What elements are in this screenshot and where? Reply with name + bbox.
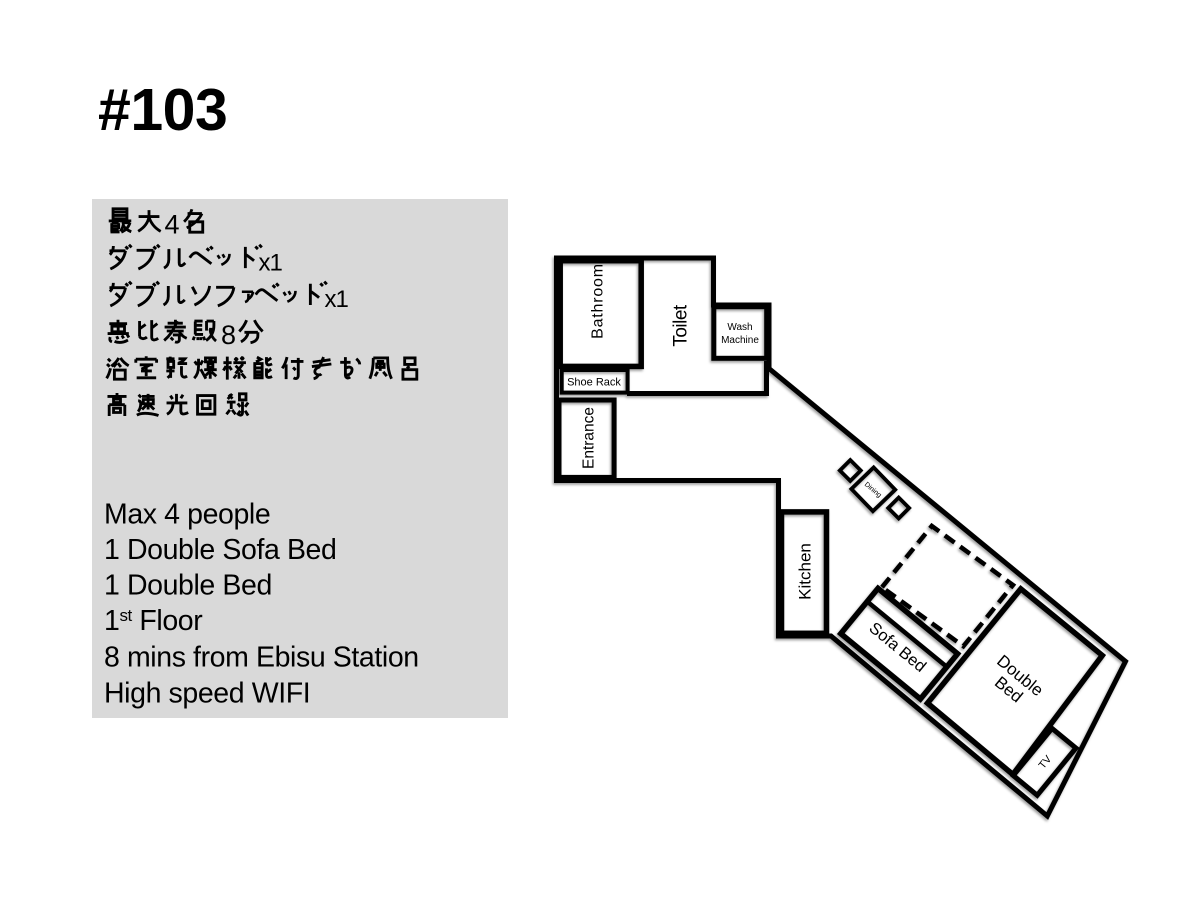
svg-text:8 mins from Ebisu Station: 8 mins from Ebisu Station <box>104 642 419 674</box>
svg-text:Wash: Wash <box>727 322 752 333</box>
svg-text:High speed WIFI: High speed WIFI <box>104 678 310 710</box>
svg-text:1 Double Bed: 1 Double Bed <box>104 570 272 602</box>
svg-text:TV: TV <box>1036 753 1054 771</box>
svg-text:1st Floor: 1st Floor <box>104 605 203 637</box>
svg-text:4: 4 <box>165 210 180 240</box>
svg-text:Entrance: Entrance <box>581 407 598 469</box>
svg-text:Shoe Rack: Shoe Rack <box>567 377 621 389</box>
svg-text:#103: #103 <box>98 77 227 143</box>
svg-text:DoubleBed: DoubleBed <box>982 651 1047 714</box>
svg-text:Kitchen: Kitchen <box>796 543 815 600</box>
svg-text:Max 4 people: Max 4 people <box>104 499 270 531</box>
svg-text:Toilet: Toilet <box>671 304 692 347</box>
svg-text:Machine: Machine <box>721 335 759 346</box>
svg-text:x1: x1 <box>325 286 349 313</box>
svg-text:x1: x1 <box>259 249 283 276</box>
svg-text:Dining: Dining <box>863 481 883 499</box>
svg-text:8: 8 <box>221 320 236 350</box>
svg-text:Bathroom: Bathroom <box>590 263 607 339</box>
svg-text:1 Double Sofa Bed: 1 Double Sofa Bed <box>104 534 336 566</box>
